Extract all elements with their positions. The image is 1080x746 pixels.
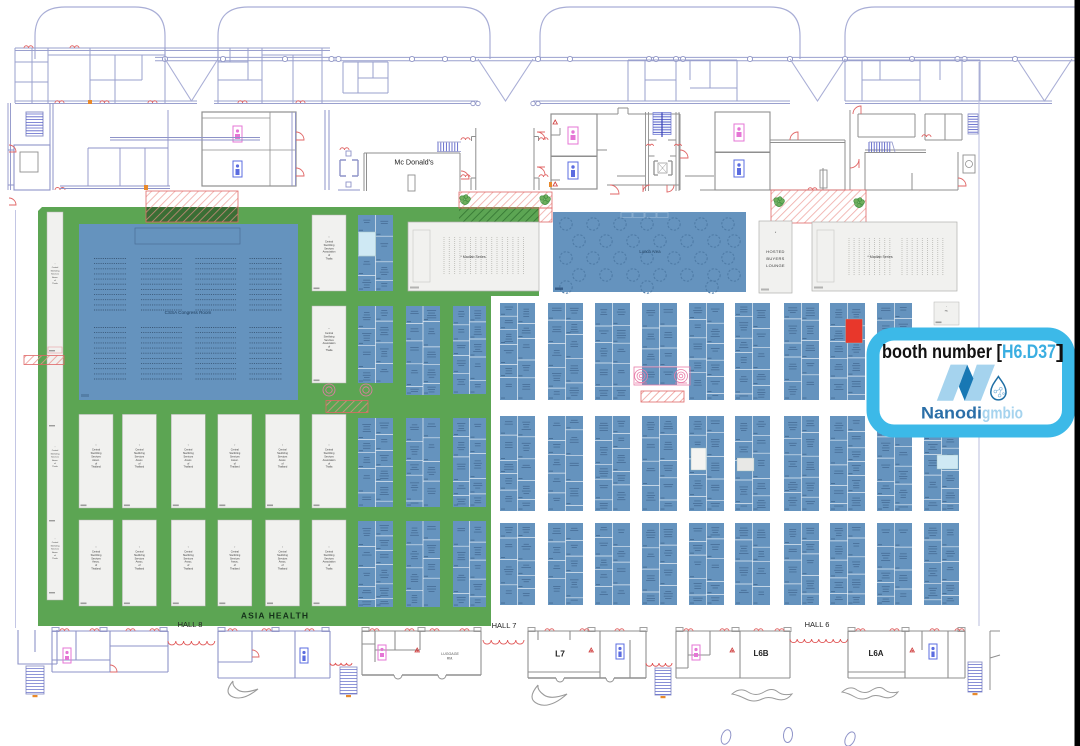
svg-text:*: *: [188, 547, 189, 550]
svg-text:Thailand: Thailand: [135, 466, 145, 469]
svg-text:Thaila: Thaila: [52, 558, 58, 560]
svg-text:HALL 6: HALL 6: [805, 620, 830, 629]
svg-text:Assoc: Assoc: [52, 276, 57, 279]
svg-text:*: *: [329, 445, 330, 448]
svg-text:*: *: [329, 237, 330, 240]
svg-text:* Madlab Series: * Madlab Series: [460, 255, 486, 259]
svg-text:gmbio: gmbio: [982, 405, 1023, 423]
svg-text:Central: Central: [52, 266, 59, 269]
svg-text:*: *: [96, 445, 97, 448]
svg-text:Central: Central: [52, 449, 59, 452]
svg-text:Thailand: Thailand: [278, 568, 288, 571]
svg-text:HALL 8: HALL 8: [178, 620, 203, 629]
svg-text:Thaila: Thaila: [52, 466, 58, 468]
svg-text:L7: L7: [555, 649, 565, 659]
svg-text:ASIA HEALTH: ASIA HEALTH: [241, 611, 309, 621]
svg-text:*: *: [282, 445, 283, 448]
svg-text:H6.D37: H6.D37: [1002, 342, 1056, 363]
svg-text:RM.: RM.: [447, 657, 454, 661]
svg-text:booth number [: booth number [: [882, 342, 1003, 363]
svg-text:Assoc: Assoc: [52, 459, 57, 462]
svg-text:Services: Services: [51, 457, 59, 459]
svg-text:Sterilizing: Sterilizing: [51, 452, 60, 455]
svg-text:Thailand: Thailand: [91, 568, 101, 571]
svg-text:*: *: [234, 547, 235, 550]
svg-text:HALL 7: HALL 7: [492, 621, 517, 630]
svg-text:*: *: [329, 328, 330, 331]
svg-text:Thailand: Thailand: [184, 568, 194, 571]
svg-text:*: *: [946, 307, 947, 309]
svg-text:BUYERS: BUYERS: [766, 256, 784, 261]
svg-text:Thailand: Thailand: [278, 466, 288, 469]
svg-text:Central: Central: [52, 541, 59, 544]
svg-text:]: ]: [1056, 342, 1064, 363]
svg-text:Sterilizing: Sterilizing: [51, 544, 60, 547]
svg-text:Thailand: Thailand: [230, 466, 240, 469]
svg-text:*: *: [139, 547, 140, 550]
svg-text:*: *: [139, 445, 140, 448]
svg-text:*: *: [282, 547, 283, 550]
svg-text:Thaila: Thaila: [326, 258, 333, 261]
svg-text:Thaila: Thaila: [326, 568, 333, 571]
svg-text:* Madlab Series: * Madlab Series: [867, 255, 893, 259]
svg-text:Thaila: Thaila: [52, 283, 58, 285]
svg-text:*: *: [329, 547, 330, 550]
svg-text:Thaila: Thaila: [326, 349, 333, 352]
svg-text:*: *: [96, 547, 97, 550]
svg-text:Nanodi: Nanodi: [921, 405, 982, 423]
svg-text:LOUNGE: LOUNGE: [766, 263, 785, 268]
svg-text:Thaila: Thaila: [326, 466, 333, 469]
svg-text:Thailand: Thailand: [135, 568, 145, 571]
svg-text:Sterilizing: Sterilizing: [51, 269, 60, 272]
svg-text:Assoc: Assoc: [52, 551, 57, 554]
svg-text:Thailand: Thailand: [230, 568, 240, 571]
svg-text:Services: Services: [51, 549, 59, 551]
svg-text:Services: Services: [51, 274, 59, 276]
svg-text:*: *: [188, 445, 189, 448]
svg-text:Thailand: Thailand: [91, 466, 101, 469]
svg-text:Thailand: Thailand: [184, 466, 194, 469]
svg-text:L6B: L6B: [753, 649, 768, 658]
svg-text:CSSA Congress Room: CSSA Congress Room: [165, 310, 212, 315]
svg-text:LUGGAGE: LUGGAGE: [441, 652, 459, 656]
svg-text:Mc Donald's: Mc Donald's: [394, 158, 434, 167]
svg-text:HOSTED: HOSTED: [766, 249, 784, 254]
svg-text:H6.: H6.: [945, 311, 949, 313]
svg-text:L6A: L6A: [868, 649, 883, 658]
svg-text:Lunch Area: Lunch Area: [639, 249, 661, 254]
svg-text:*: *: [234, 445, 235, 448]
